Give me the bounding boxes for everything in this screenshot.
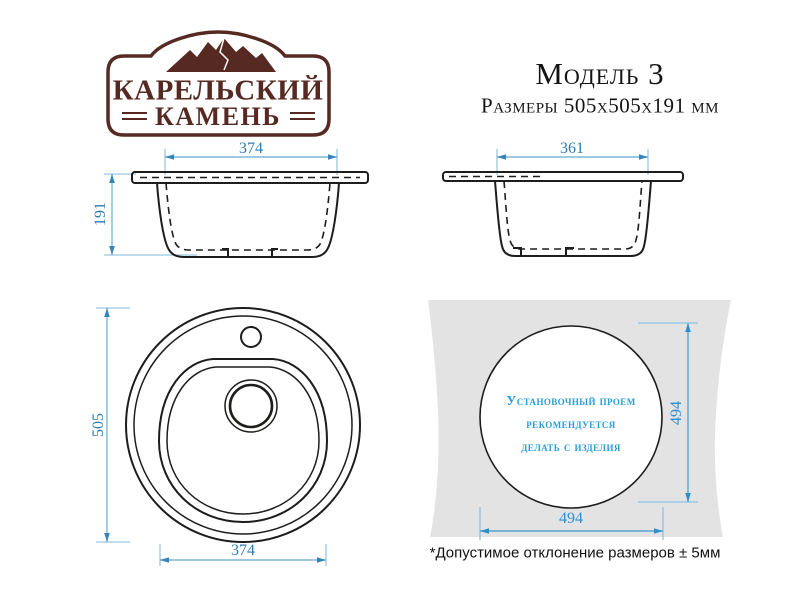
bowl-outer-wall	[495, 181, 651, 256]
front-section-view	[104, 149, 368, 257]
arrow-left-icon	[160, 557, 169, 563]
model-title: Модель 3	[535, 56, 664, 92]
top-view	[96, 308, 360, 566]
logo-right-dash	[290, 112, 315, 120]
arrow-left-icon	[165, 154, 174, 160]
tolerance-footnote: *Допустимое отклонение размеров ± 5мм	[430, 545, 721, 562]
bowl-outer-wall	[157, 183, 339, 257]
bowl-outer-edge	[159, 359, 327, 522]
side-width-dimension-label: 361	[560, 140, 584, 158]
front-width-dimension-label: 374	[239, 140, 263, 158]
arrow-right-icon	[328, 154, 337, 160]
overall-size-subtitle: Размеры 505x505x191 мм	[481, 94, 719, 119]
cutout-height-dimension-label: 494	[668, 401, 686, 425]
cutout-note-line2: рекомендуется	[526, 416, 615, 432]
arrow-left-icon	[497, 154, 506, 160]
arrow-right-icon	[639, 154, 648, 160]
bowl-inner-hidden-line	[166, 183, 330, 250]
extension-lines	[104, 149, 337, 255]
cutout-note-line1: Установочный проем	[506, 393, 635, 409]
top-view-bowl-width-label: 374	[231, 542, 255, 560]
arrow-right-icon	[317, 557, 326, 563]
extension-lines	[96, 308, 326, 566]
sink-datasheet-page: КАРЕЛЬСКИЙ КАМЕНЬ Модель 3 Размеры 505x5…	[0, 0, 800, 612]
top-view-diameter-label: 505	[90, 413, 108, 437]
brand-name-line2: КАМЕНЬ	[155, 102, 281, 132]
arrow-down-icon	[104, 533, 110, 542]
arrow-up-icon	[104, 308, 110, 317]
arrow-up-icon	[109, 174, 115, 183]
bowl-inner-edge	[167, 367, 319, 514]
faucet-hole	[241, 327, 261, 347]
bowl-inner-hidden-line	[504, 181, 642, 249]
cutout-note-line3: делать с изделия	[521, 439, 621, 455]
drain-hole	[230, 385, 272, 427]
cutout-width-dimension-label: 494	[559, 510, 583, 528]
side-section-view	[443, 149, 683, 256]
logo-left-dash	[122, 112, 147, 120]
front-height-dimension-label: 191	[92, 202, 110, 226]
drain-outer-ring	[225, 380, 277, 432]
arrow-down-icon	[109, 246, 115, 255]
